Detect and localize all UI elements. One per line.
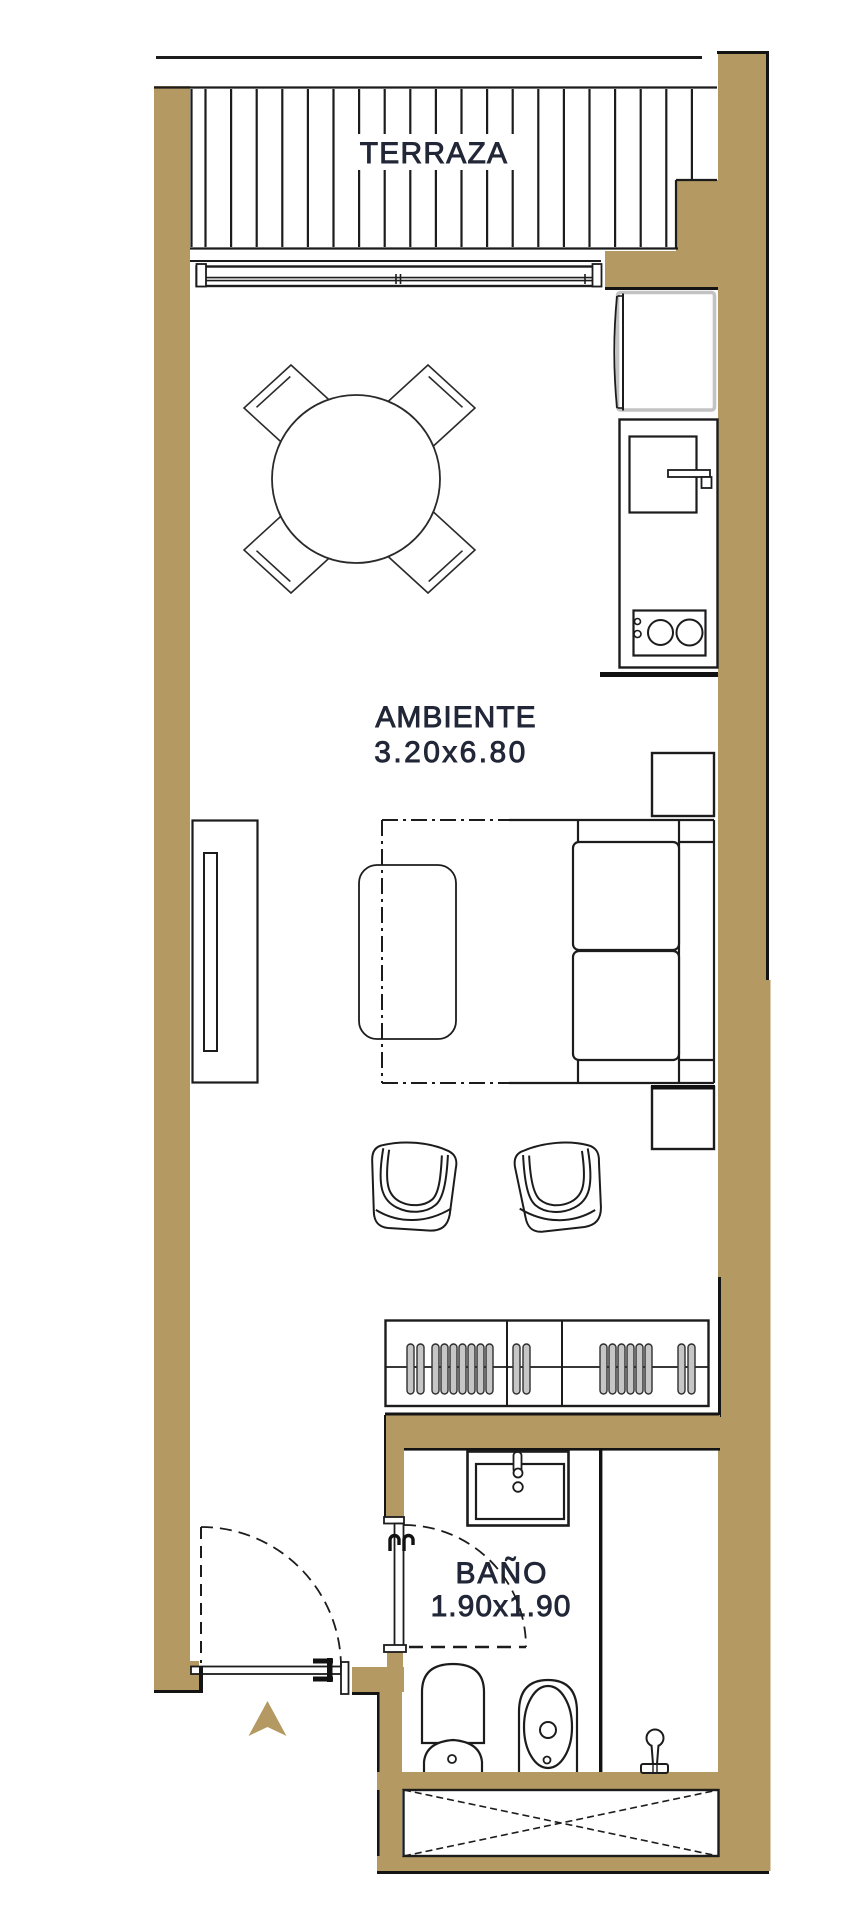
svg-text:BAÑO: BAÑO [455, 1556, 548, 1590]
svg-text:3.20x6.80: 3.20x6.80 [374, 736, 527, 769]
svg-text:1.90x1.90: 1.90x1.90 [431, 1590, 572, 1623]
svg-text:TERRAZA: TERRAZA [360, 137, 508, 170]
svg-text:AMBIENTE: AMBIENTE [375, 701, 536, 734]
